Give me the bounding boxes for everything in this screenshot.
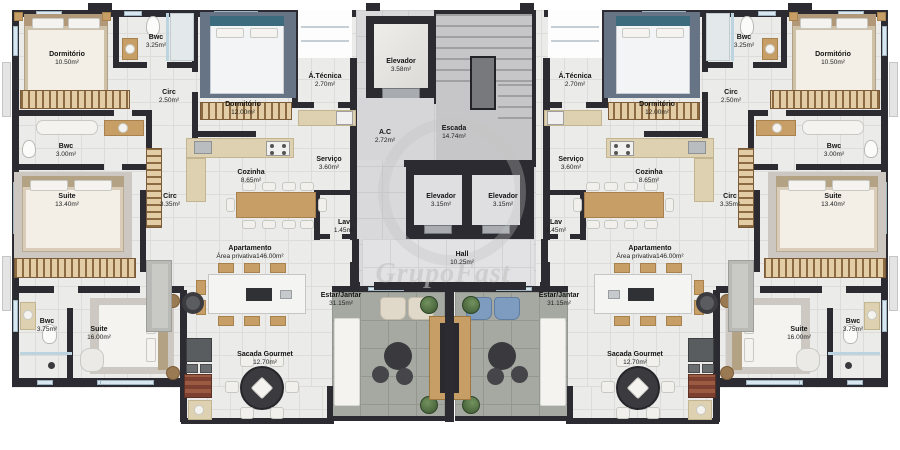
label-area-tecnica-right: Á.Técnica2.70m²: [558, 72, 591, 90]
label-bwc-mid-right: Bwc3.00m²: [824, 142, 844, 160]
label-apartamento-right: ApartamentoÁrea privativa146.00m²: [616, 244, 683, 262]
label-suite-master-right: Suite16.00m²: [787, 325, 811, 343]
label-servico-right: Serviço3.60m²: [558, 155, 583, 173]
label-dormitorio-mid-right: Dormitório12.00m²: [639, 100, 675, 118]
label-suite-master-left: Suite16.00m²: [87, 325, 111, 343]
divider-slot: [454, 323, 459, 393]
label-suite-mid-right: Suite13.40m²: [821, 192, 845, 210]
label-bwc-small-right: Bwc3.25m²: [734, 33, 754, 51]
label-cozinha-right: Cozinha8.65m²: [635, 168, 662, 186]
label-circ-small-left: Circ2.50m²: [159, 88, 179, 106]
label-estar-jantar-left: Estar/Jantar31.15m²: [321, 291, 361, 309]
label-circ-small-right: Circ2.50m²: [721, 88, 741, 106]
label-hall: Hall10.25m²: [450, 250, 474, 268]
label-sacada-right: Sacada Gourmet12.70m²: [607, 350, 663, 368]
label-escada: Escada14.74m²: [442, 124, 467, 142]
label-circ-mid-right: Circ3.35m²: [720, 192, 740, 210]
wall: [540, 282, 548, 290]
label-ac: A.C2.72m²: [375, 128, 395, 146]
stair-rail: [470, 56, 496, 110]
label-bwc-mid-left: Bwc3.00m²: [56, 142, 76, 160]
label-bwc-suite-left: Bwc3.75m²: [37, 317, 57, 335]
label-circ-mid-left: Circ3.35m²: [160, 192, 180, 210]
label-elevador-top: Elevador3.58m²: [386, 57, 416, 75]
label-dormitorio-left: Dormitório10.50m²: [49, 50, 85, 68]
wall: [352, 239, 359, 288]
label-apartamento-left: ApartamentoÁrea privativa146.00m²: [216, 244, 283, 262]
label-dormitorio-mid-left: Dormitório12.00m²: [225, 100, 261, 118]
terrace-divider-wall: [445, 286, 454, 422]
stair-steps: [498, 84, 532, 126]
wall: [541, 239, 548, 288]
floor-plan: GrupoFast Dormitório10.50m² Bwc3.25m² Ci…: [0, 0, 900, 450]
label-sacada-left: Sacada Gourmet12.70m²: [237, 350, 293, 368]
label-estar-jantar-right: Estar/Jantar31.15m²: [539, 291, 579, 309]
elevator-cab: [374, 24, 428, 88]
label-area-tecnica-left: Á.Técnica2.70m²: [308, 72, 341, 90]
label-lav-left: Lav1.45m²: [334, 218, 354, 236]
label-suite-mid-left: Suite13.40m²: [55, 192, 79, 210]
label-servico-left: Serviço3.60m²: [316, 155, 341, 173]
label-elevador-left: Elevador3.15m²: [426, 192, 456, 210]
label-bwc-small-left: Bwc3.25m²: [146, 33, 166, 51]
label-dormitorio-right: Dormitório10.50m²: [815, 50, 851, 68]
label-bwc-suite-right: Bwc3.75m²: [843, 317, 863, 335]
label-cozinha-left: Cozinha8.65m²: [237, 168, 264, 186]
label-lav-right: Lav1.45m²: [546, 218, 566, 236]
wall: [352, 282, 360, 290]
wall: [366, 3, 380, 11]
watermark-text: GrupoFast: [375, 258, 510, 290]
label-elevador-right: Elevador3.15m²: [488, 192, 518, 210]
